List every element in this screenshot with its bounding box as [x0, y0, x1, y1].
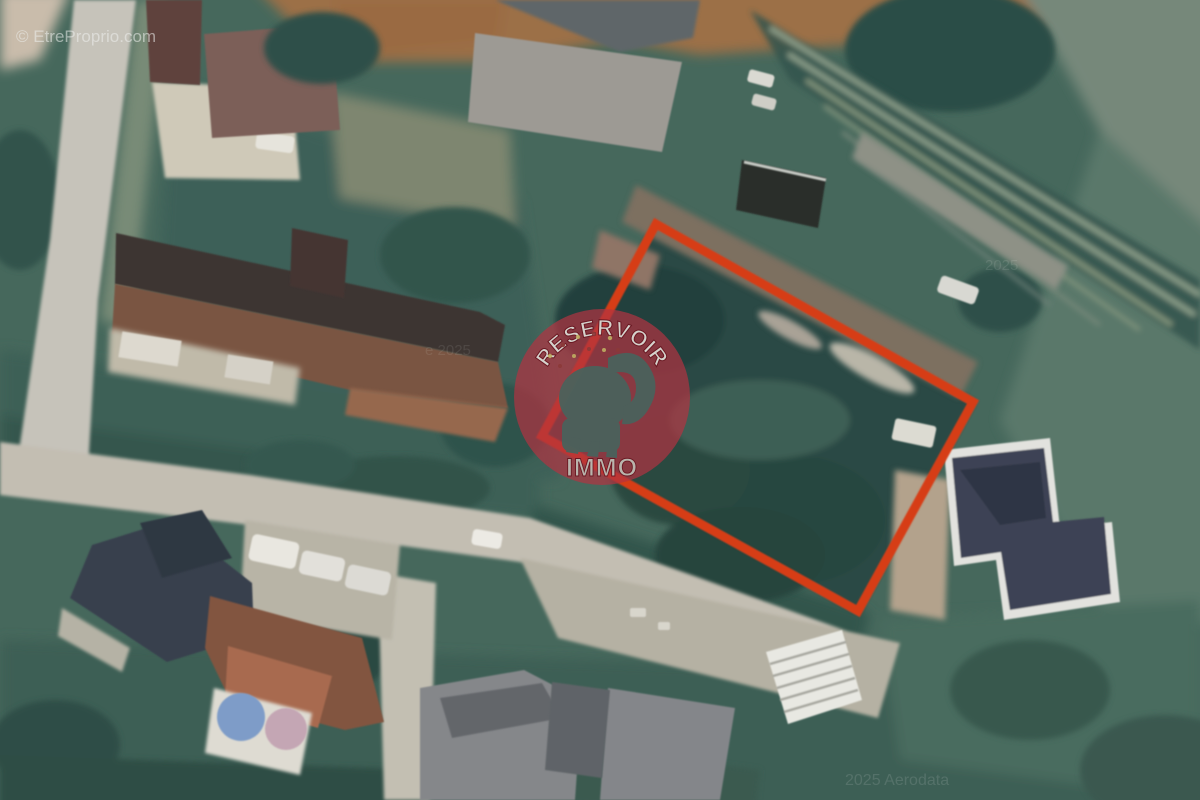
svg-text:e 2025: e 2025 — [425, 342, 471, 359]
svg-text:2025: 2025 — [985, 257, 1018, 274]
svg-text:© EtreProprio.com: © EtreProprio.com — [16, 27, 156, 46]
svg-text:2025 Aerodata: 2025 Aerodata — [845, 772, 949, 789]
svg-text:IMMO: IMMO — [566, 454, 638, 482]
